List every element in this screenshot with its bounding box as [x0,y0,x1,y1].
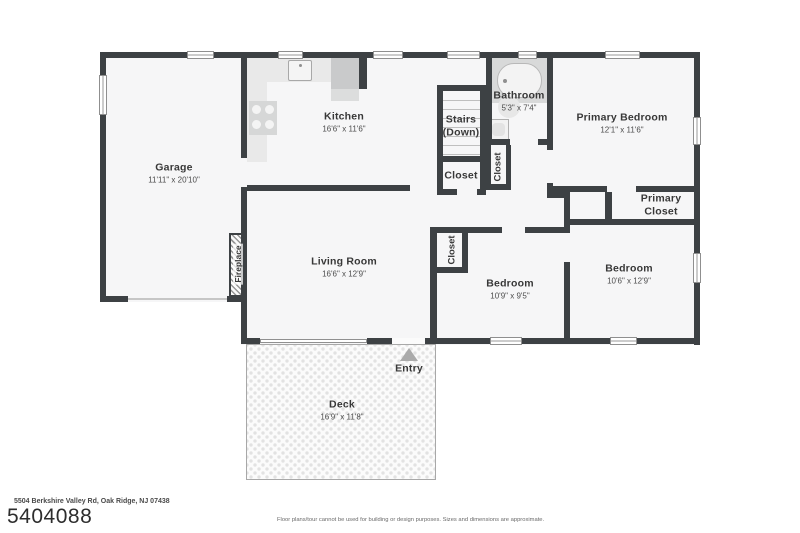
garage-door-top [187,51,214,59]
wall [241,52,247,158]
room-name: Bedroom [605,262,653,275]
room-dims: 16'6" x 11'6" [322,124,365,134]
wall [525,227,570,233]
wall [437,267,468,273]
stove-burner-icon [252,105,261,114]
window [447,51,480,59]
wall [100,115,106,302]
room-label-kitchen: Kitchen 16'6" x 11'6" [322,110,365,133]
wall [694,52,700,117]
outside-notch [100,302,241,345]
wall [437,189,457,195]
entry-opening [392,338,425,344]
window [605,51,640,59]
room-label-bedroom-closet: Closet [447,235,458,264]
room-dims: 10'6" x 12'9" [605,276,653,286]
bathroom-sink-basin [492,123,505,136]
window [693,117,701,145]
room-label-stairs: Stairs (Down) [443,113,480,138]
room-name: Primary Bedroom [576,111,667,124]
window [518,51,537,59]
room-name: Kitchen [322,110,365,123]
stove-burner-icon [265,105,274,114]
wall [430,227,437,338]
window [693,253,701,283]
wall [486,52,492,139]
wall [636,186,700,192]
wall [437,156,486,162]
wall [564,262,570,344]
wall [486,184,511,190]
room-label-bedroom-middle: Bedroom 10'9" x 9'5" [486,277,534,300]
wall [425,338,437,344]
wall [247,185,410,191]
room-label-fireplace: Fireplace [233,243,243,284]
room-label-bedroom-right: Bedroom 10'6" x 12'9" [605,262,653,285]
wall [564,219,700,225]
room-name: (Down) [443,126,480,139]
refrigerator [331,58,359,89]
wall [100,52,187,58]
entry-label: Entry [395,363,423,376]
room-dims: 11'11" x 20'10" [148,175,200,185]
room-label-living-room: Living Room 16'6" x 12'9" [311,255,377,278]
wall [694,145,700,253]
stove-burner-icon [265,120,274,129]
wall [437,85,486,91]
window [99,75,107,115]
window [278,51,303,59]
sliding-door [260,339,367,343]
room-label-primary-bedroom: Primary Bedroom 12'1" x 11'6" [576,111,667,134]
wall [437,85,443,195]
wall [640,52,700,58]
room-name: Primary [641,192,682,205]
kitchen-sink-faucet-icon [299,64,302,67]
garage-door [128,298,227,300]
room-name: Closet [641,205,682,218]
wall [403,52,447,58]
wall [100,52,106,75]
room-label-bathroom: Bathroom 5'3" x 7'4" [493,89,544,112]
entry-arrow-icon [400,348,418,361]
stove-burner-icon [252,120,261,129]
kitchen-counter [331,89,359,101]
bathtub-faucet-icon [503,79,507,83]
room-name: Entry [395,363,423,376]
property-address: 5504 Berkshire Valley Rd, Oak Ridge, NJ … [14,498,170,505]
room-label-deck: Deck 16'9" x 11'8" [320,398,363,421]
room-dims: 16'9" x 11'8" [320,412,363,422]
wall [367,338,392,344]
room-label-garage: Garage 11'11" x 20'10" [148,161,200,184]
listing-id: 5404088 [7,505,92,529]
window [610,337,637,345]
room-name: Living Room [311,255,377,268]
wall [100,296,128,302]
wall [547,52,553,150]
wall [437,227,502,233]
room-name: Bathroom [493,89,544,102]
wall [694,283,700,345]
room-label-primary-closet: Primary Closet [641,192,682,217]
wall [637,338,700,344]
room-name: Garage [148,161,200,174]
wall [247,338,260,344]
window [490,337,522,345]
room-label-stair-closet: Closet [444,170,477,183]
wall [486,139,510,145]
wall [437,338,490,344]
disclaimer-text: Floor plans/tour cannot be used for buil… [277,517,544,523]
room-name: Closet [444,170,477,183]
room-name: Deck [320,398,363,411]
room-dims: 10'9" x 9'5" [486,291,534,301]
room-dims: 16'6" x 12'9" [311,269,377,279]
room-name: Bedroom [486,277,534,290]
wall [553,186,607,192]
wall [359,58,367,89]
floor-plan: Garage 11'11" x 20'10" Kitchen 16'6" x 1… [0,0,800,533]
room-dims: 5'3" x 7'4" [493,103,544,113]
room-label-hall-closet: Closet [493,152,504,181]
room-dims: 12'1" x 11'6" [576,125,667,135]
room-name: Stairs [443,113,480,126]
window [373,51,403,59]
